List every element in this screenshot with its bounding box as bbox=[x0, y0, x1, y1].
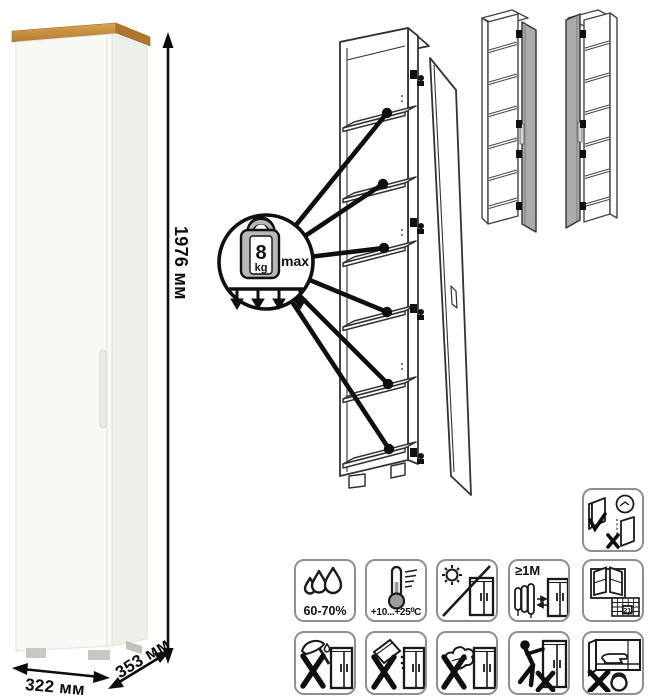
weight-value: 8 bbox=[255, 242, 266, 264]
foot bbox=[349, 474, 365, 488]
humidity-label: 60-70% bbox=[296, 604, 354, 618]
cabinet-front-door bbox=[16, 34, 112, 651]
door-handle-groove bbox=[100, 350, 106, 428]
no-overload-icon bbox=[582, 631, 644, 695]
cabinet-foot bbox=[88, 650, 110, 660]
x-mark-icon bbox=[303, 656, 323, 686]
wardrobe-glyph bbox=[331, 648, 352, 688]
temperature-label: +10...+25⁰C bbox=[367, 607, 425, 618]
weight-unit: kg bbox=[255, 262, 268, 274]
no-sunlight-icon bbox=[436, 559, 498, 622]
shelf-load-diagram: 8 kg max bbox=[205, 8, 480, 520]
wardrobe-glyph bbox=[548, 579, 568, 616]
door-right-variant bbox=[482, 10, 536, 232]
distance-label: ≥1M bbox=[515, 563, 540, 578]
calendar-day-label: 21 bbox=[624, 607, 632, 614]
ventilation-calendar-icon: 21 bbox=[582, 559, 644, 622]
cabinet-side-panel bbox=[112, 34, 147, 646]
double-arrow-icon bbox=[537, 596, 547, 607]
load-badge: 8 kg max bbox=[219, 215, 313, 309]
wardrobe-glyph bbox=[404, 648, 424, 688]
open-window-icon bbox=[591, 567, 625, 598]
cabinet-photo bbox=[0, 0, 200, 700]
temperature-icon: +10...+25⁰C bbox=[365, 559, 427, 622]
sun-icon bbox=[447, 569, 458, 580]
wardrobe-glyph bbox=[474, 648, 495, 688]
height-dimension-label: 1976 мм bbox=[170, 226, 191, 300]
door-variant-drawings bbox=[476, 4, 648, 236]
x-mark-icon bbox=[590, 672, 608, 691]
weight-qualifier: max bbox=[281, 253, 309, 269]
foot bbox=[391, 463, 405, 478]
cabinet-foot bbox=[26, 648, 46, 658]
no-abrasive-powder-icon bbox=[365, 631, 427, 695]
product-spec-sheet: 1976 мм 322 мм 353 мм bbox=[0, 0, 648, 700]
door-adjustment-icon bbox=[582, 488, 644, 552]
no-sharp-tools-icon bbox=[294, 631, 356, 695]
door-left-variant bbox=[566, 10, 617, 228]
open-door bbox=[430, 58, 471, 495]
carcass-right-strip bbox=[408, 28, 418, 464]
kettlebell-icon bbox=[612, 674, 627, 691]
heat-distance-icon: ≥1M bbox=[508, 559, 570, 622]
radiator-icon bbox=[515, 584, 534, 618]
no-abrasive-sponge-icon bbox=[436, 631, 498, 695]
height-dimension-arrow bbox=[163, 32, 174, 664]
humidity-icon: 60-70% bbox=[294, 559, 356, 622]
no-dragging-icon bbox=[508, 631, 570, 695]
x-mark-icon bbox=[608, 535, 618, 547]
